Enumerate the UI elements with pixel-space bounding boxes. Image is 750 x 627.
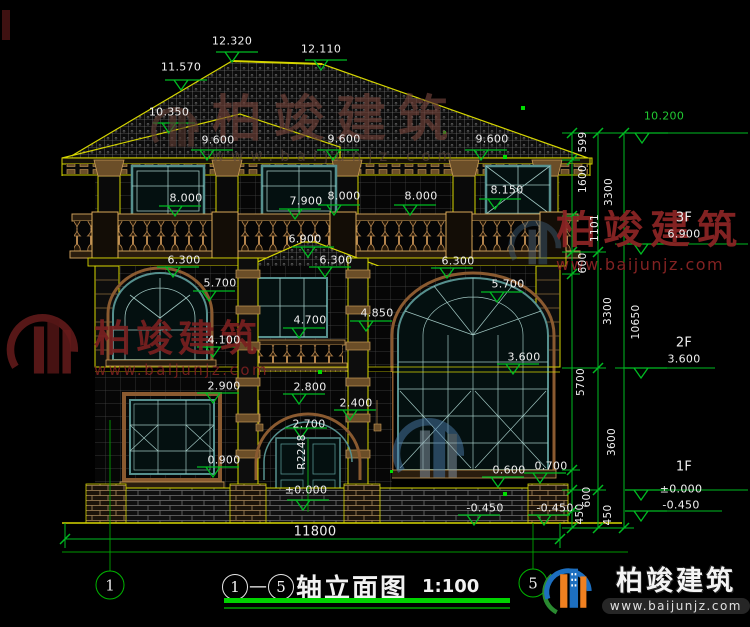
dim-label: 3.600 (668, 353, 701, 366)
dim-label: 4.850 (361, 307, 394, 320)
drawing-scale: 1:100 (422, 576, 479, 597)
dim-label: 10650 (630, 305, 642, 340)
axis-range-dash: — (249, 576, 267, 597)
dim-label: 6.900 (289, 233, 322, 246)
1f-left-window (120, 394, 224, 488)
dim-label: 11800 (294, 525, 337, 540)
dim-label: 5.700 (492, 278, 525, 291)
dim-label: 2F (676, 336, 692, 351)
dim-label: 0.900 (208, 454, 241, 467)
dim-label: 6.900 (668, 228, 701, 241)
dim-label: 6.300 (320, 254, 353, 267)
dim-label: 2.800 (294, 381, 327, 394)
dim-label: 8.000 (405, 190, 438, 203)
watermark-fragment (2, 10, 10, 40)
dim-label: 1101 (589, 214, 601, 242)
dim-label: 3F (676, 211, 692, 226)
dim-label: 4.100 (208, 334, 241, 347)
title-underline-thin (224, 607, 510, 609)
dim-label: ±0.000 (285, 484, 328, 497)
dim-label: 12.110 (301, 43, 341, 56)
dim-label: 12.320 (212, 35, 252, 48)
elevation-marker (625, 244, 667, 254)
dim-label: 9.600 (476, 133, 509, 146)
dim-label: 3.600 (508, 351, 541, 364)
dim-label: 0.600 (493, 464, 526, 477)
dim-label: 11.570 (161, 61, 201, 74)
dim-label: -0.450 (536, 502, 573, 515)
cad-viewport: 柏竣建筑 www.baijunjz.com 柏竣建筑 www.baijunjz.… (0, 0, 750, 627)
dim-label: 8.150 (491, 184, 524, 197)
elevation-marker (626, 133, 668, 143)
dim-label: 10.200 (644, 110, 684, 123)
brand-logo: 柏竣建筑 www.baijunjz.com (540, 554, 750, 627)
brand-text: 柏竣建筑 (616, 567, 736, 597)
dim-label: 8.000 (328, 190, 361, 203)
dim-label: 6.300 (168, 254, 201, 267)
brand-logo-icon (540, 556, 596, 626)
brand-url: www.baijunjz.com (602, 598, 750, 614)
dim-label: 599 (577, 132, 589, 153)
axis-bubble-start: 1 (222, 574, 248, 600)
dim-label: -0.450 (662, 499, 699, 512)
dim-label: 7.900 (290, 195, 323, 208)
dim-label: 1F (676, 460, 692, 475)
roof (62, 61, 588, 158)
dim-label: 3300 (603, 178, 615, 206)
title-underline (224, 598, 510, 603)
dim-label: -0.450 (466, 502, 503, 515)
dim-label: 450 (574, 504, 586, 525)
dim-label: 450 (602, 505, 614, 526)
dim-label: 5.700 (204, 277, 237, 290)
dim-label: 0.700 (535, 460, 568, 473)
dim-label: 6.300 (442, 255, 475, 268)
axis-bubble: 1 (96, 571, 125, 600)
dim-label: 4.700 (294, 314, 327, 327)
dim-label: 10.350 (149, 106, 189, 119)
dim-label: R2248 (296, 434, 308, 470)
elevation-marker (482, 477, 524, 487)
grand-arched-window (390, 273, 556, 478)
elevation-marker (625, 511, 667, 521)
dim-label: 1600 (577, 165, 589, 193)
axis-bubble-end: 5 (268, 574, 294, 600)
elevation-marker (625, 368, 667, 378)
dim-label: 9.600 (202, 134, 235, 147)
dim-label: 2.700 (293, 418, 326, 431)
dim-label: 2.900 (208, 380, 241, 393)
dim-label: ±0.000 (660, 483, 703, 496)
dim-label: 5700 (575, 368, 587, 396)
dim-label: 2.400 (340, 397, 373, 410)
dim-label: 8.000 (170, 192, 203, 205)
dim-label: 600 (577, 253, 589, 274)
dim-label: 9.600 (328, 133, 361, 146)
dim-label: 3600 (606, 428, 618, 456)
dim-label: 3300 (602, 297, 614, 325)
2f-arched-window (106, 268, 216, 366)
